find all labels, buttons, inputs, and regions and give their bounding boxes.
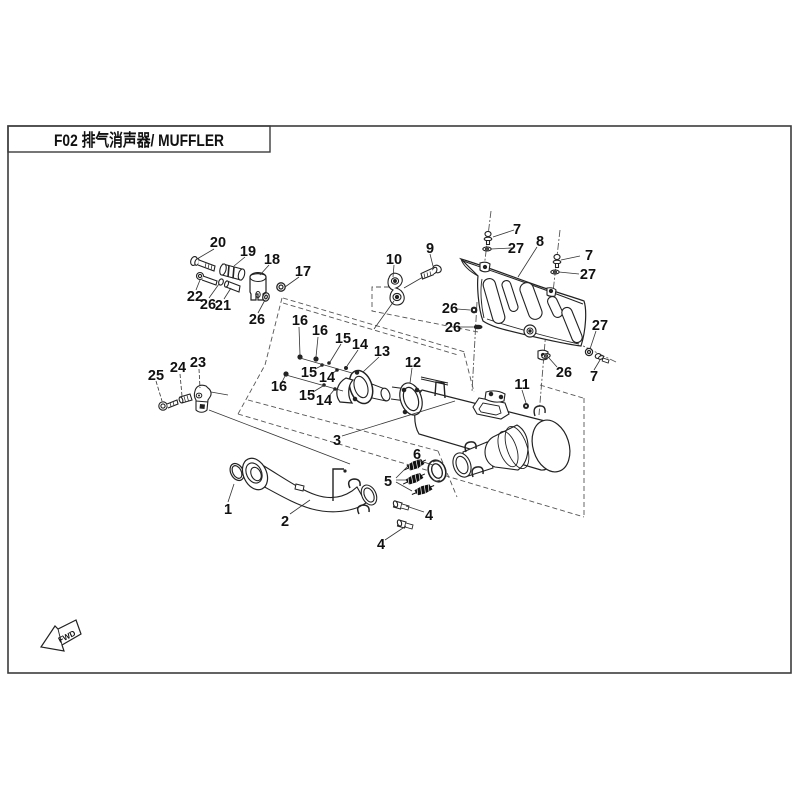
svg-text:27: 27 [580,267,596,283]
svg-text:13: 13 [374,344,390,360]
svg-text:8: 8 [536,234,544,250]
svg-text:16: 16 [312,323,328,339]
svg-text:18: 18 [264,252,280,268]
svg-text:27: 27 [592,318,608,334]
svg-text:19: 19 [240,244,256,260]
svg-text:27: 27 [508,241,524,257]
svg-text:23: 23 [190,355,206,371]
svg-text:25: 25 [148,368,164,384]
svg-text:26: 26 [442,301,458,317]
svg-text:26: 26 [556,365,572,381]
svg-text:4: 4 [425,508,433,524]
svg-text:7: 7 [585,248,593,264]
svg-text:1: 1 [224,502,232,518]
svg-text:9: 9 [426,241,434,257]
svg-text:10: 10 [386,252,402,268]
svg-text:7: 7 [590,369,598,385]
svg-text:14: 14 [316,393,332,409]
svg-text:3: 3 [333,433,341,449]
svg-text:14: 14 [319,370,335,386]
svg-text:26: 26 [249,312,265,328]
svg-text:2: 2 [281,514,289,530]
svg-text:7: 7 [513,222,521,238]
svg-text:21: 21 [215,298,231,314]
svg-text:6: 6 [413,447,421,463]
svg-text:24: 24 [170,360,186,376]
svg-text:16: 16 [292,313,308,329]
svg-text:14: 14 [352,337,368,353]
svg-text:17: 17 [295,264,311,280]
svg-text:15: 15 [301,365,317,381]
svg-text:15: 15 [299,388,315,404]
svg-text:16: 16 [271,379,287,395]
svg-text:4: 4 [377,537,385,553]
svg-text:11: 11 [514,377,529,393]
svg-text:F02 排气消声器/ MUFFLER: F02 排气消声器/ MUFFLER [54,130,224,150]
svg-text:26: 26 [445,320,461,336]
svg-text:26: 26 [200,297,216,313]
svg-text:15: 15 [335,331,351,347]
svg-text:20: 20 [210,235,226,251]
svg-text:12: 12 [405,355,421,371]
svg-text:5: 5 [384,474,392,490]
